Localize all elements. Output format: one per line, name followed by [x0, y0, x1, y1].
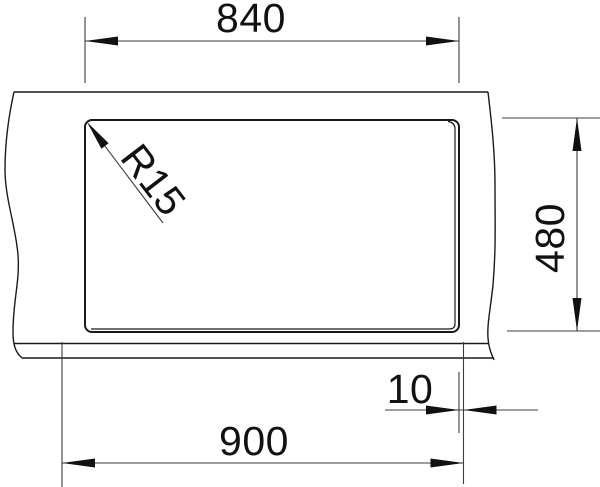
- dim-r15-label: R15: [112, 135, 195, 224]
- dim-840-arrow-right: [426, 37, 459, 46]
- dim-900-label: 900: [219, 418, 289, 464]
- dimension-drawing-canvas: 840 480 900 10: [0, 0, 600, 487]
- dim-480-arrow-down: [573, 298, 582, 331]
- dim-900-arrow-right: [431, 459, 464, 468]
- sink-cutout-drawing: 840 480 900 10: [0, 0, 600, 487]
- dim-900-arrow-left: [62, 459, 95, 468]
- dim-overall-width: 900: [62, 342, 464, 487]
- countertop-right-break-edge: [488, 92, 495, 360]
- dim-840-arrow-left: [85, 37, 118, 46]
- dim-480-arrow-up: [573, 118, 582, 151]
- dim-edge-offset: 10: [385, 366, 538, 433]
- dim-cutout-width: 840: [85, 0, 459, 83]
- dim-cutout-depth: 480: [502, 118, 600, 331]
- dim-10-label: 10: [387, 366, 434, 412]
- countertop-outline: [5, 92, 495, 360]
- countertop-left-break-edge: [5, 92, 22, 358]
- dim-corner-radius: R15: [87, 122, 195, 224]
- dim-480-label: 480: [527, 203, 573, 273]
- dim-10-arrow-right: [464, 406, 497, 415]
- dim-840-label: 840: [216, 0, 286, 41]
- r15-leader-arrow: [87, 122, 109, 149]
